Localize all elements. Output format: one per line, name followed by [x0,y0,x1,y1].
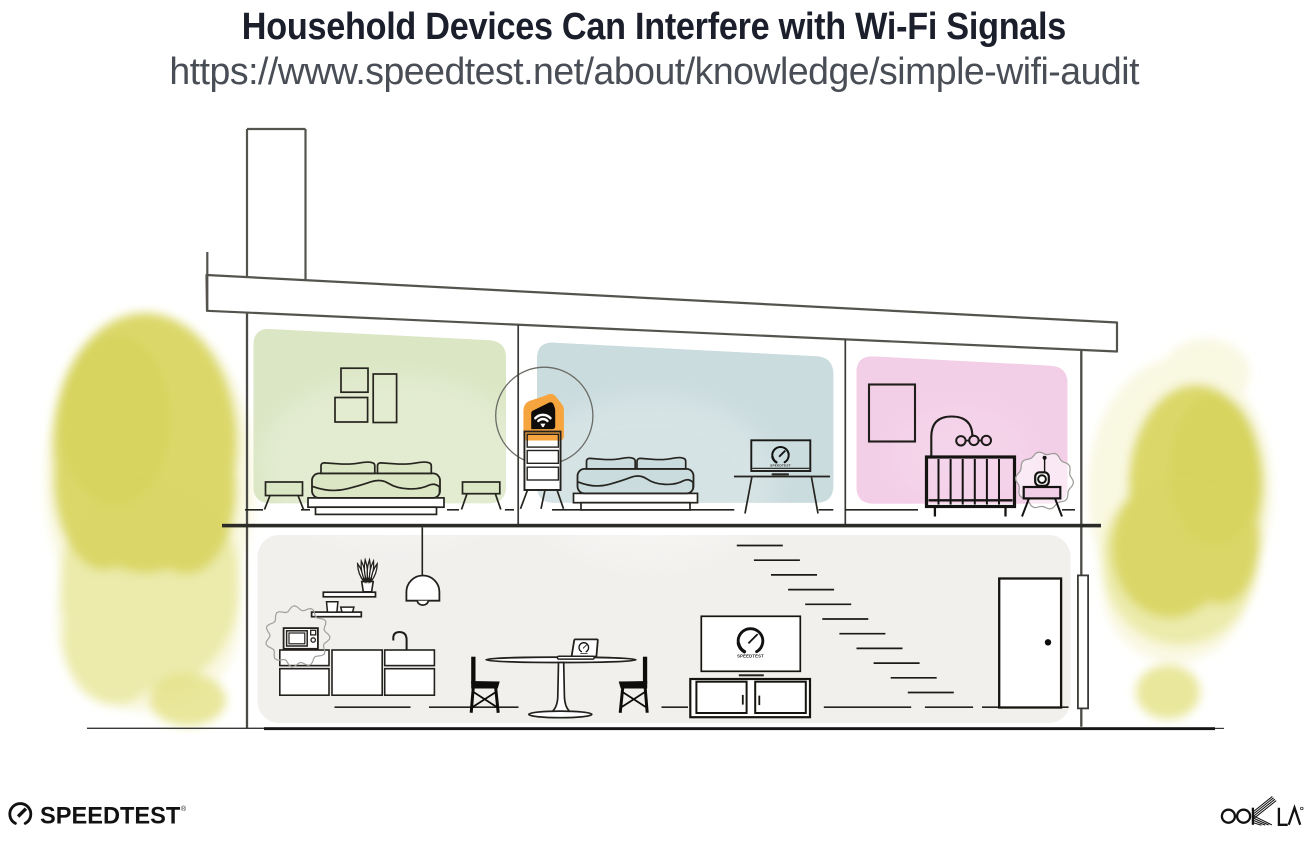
svg-text:SPEEDTEST: SPEEDTEST [737,653,764,658]
svg-text:®: ® [181,805,187,813]
svg-text:SPEEDTEST: SPEEDTEST [40,803,181,829]
svg-text:SPEEDTEST: SPEEDTEST [770,464,791,468]
